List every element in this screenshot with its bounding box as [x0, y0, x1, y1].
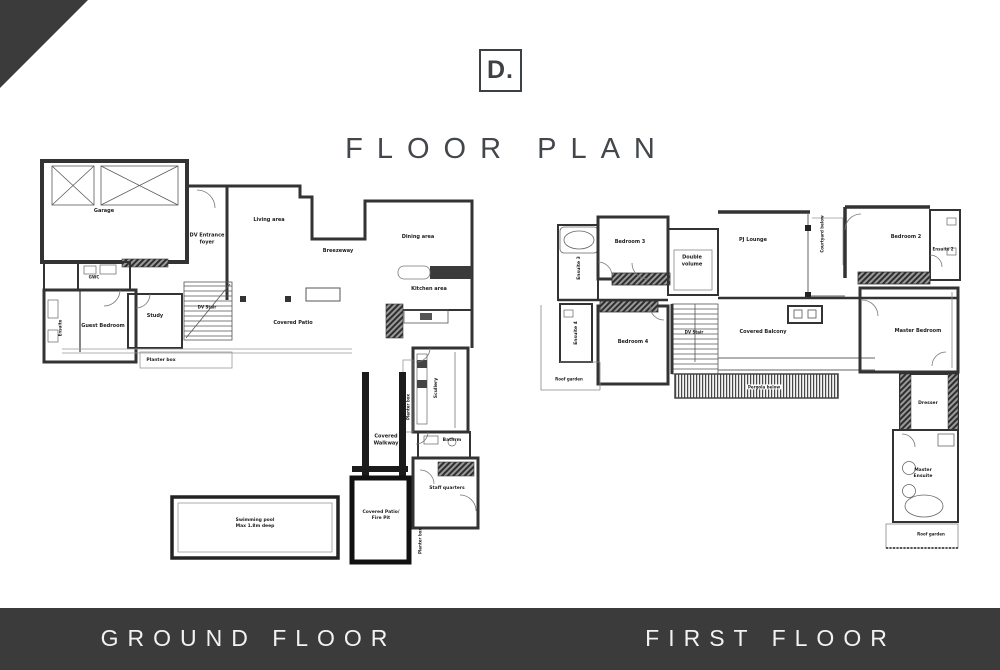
- footer-band: GROUND FLOOR FIRST FLOOR: [0, 608, 1000, 670]
- label-staff-quarters: Staff quarters: [429, 486, 464, 492]
- label-roof-garden-left: Roof garden: [555, 376, 583, 381]
- label-planter-box-2: Planter box: [405, 394, 410, 420]
- ground-main-walls: [187, 186, 472, 348]
- label-master-ensuite: Master Ensuite: [908, 468, 938, 480]
- kitchen-fixtures: [398, 266, 472, 323]
- label-dresser: Dresser: [918, 401, 938, 407]
- label-bedroom-3: Bedroom 3: [615, 239, 646, 246]
- label-covered-patio: Covered Patio: [273, 320, 312, 327]
- label-double-volume: Double volume: [677, 255, 707, 268]
- ground-stair: [184, 282, 232, 340]
- label-covered-balcony: Covered Balcony: [739, 329, 786, 336]
- label-swimming-pool: Swimming pool Max 1.8m deep: [236, 518, 275, 530]
- balcony-band-1: [612, 273, 670, 285]
- ground-floor-caption: GROUND FLOOR: [92, 625, 397, 652]
- garage-outline: [42, 161, 187, 267]
- first-stair: [672, 304, 718, 374]
- label-guest-bedroom: Guest Bedroom: [81, 323, 125, 330]
- label-dining-area: Dining area: [402, 234, 435, 241]
- label-bedroom-4: Bedroom 4: [618, 339, 649, 346]
- label-dv-stair-first: DV Stair: [685, 329, 704, 334]
- label-pergola-below: Pergola below: [746, 384, 782, 389]
- label-dv-entrance-foyer: DV Entrance foyer: [186, 233, 228, 246]
- label-ensuite-3: Ensuite 3: [577, 256, 583, 280]
- label-bathrm: Bathrm: [443, 438, 462, 444]
- label-planter-box-3: Planter box: [417, 528, 422, 554]
- first-floor-caption: FIRST FLOOR: [636, 625, 896, 652]
- floorplan-linework: [0, 0, 1000, 670]
- label-pj-lounge: PJ Lounge: [739, 237, 767, 244]
- label-breezeway: Breezeway: [323, 248, 353, 255]
- label-ensuite-4: Ensuite 4: [574, 321, 580, 345]
- label-living-area: Living area: [253, 217, 284, 224]
- label-dv-stair-ground: DV Stair: [198, 304, 217, 309]
- balcony-area: [718, 306, 875, 370]
- label-roof-garden-bottom: Roof garden: [917, 531, 945, 536]
- label-master-bedroom: Master Bedroom: [895, 328, 942, 335]
- label-gwc: GWC: [89, 274, 100, 279]
- staff-block: [413, 432, 478, 528]
- pj-lounge-walls: [718, 212, 845, 298]
- label-covered-walkway: Covered Walkway: [369, 434, 403, 447]
- label-bedroom-2: Bedroom 2: [891, 234, 922, 241]
- mid-division: [558, 298, 958, 300]
- label-courtyard-below: Courtyard below: [819, 215, 824, 252]
- label-study: Study: [147, 313, 163, 320]
- floor-plan-page: D. FLOOR PLAN: [0, 0, 1000, 670]
- garage-door-cross: [52, 166, 178, 205]
- label-ensuite-2: Ensuite 2: [933, 246, 954, 251]
- label-planter-box: Planter box: [146, 358, 175, 364]
- label-scullery: Scullery: [434, 378, 440, 398]
- label-kitchen-area: Kitchen area: [411, 286, 447, 293]
- first-floor-plan: [541, 207, 960, 548]
- label-ensuite-ground: Ensuite: [57, 320, 62, 337]
- pool-line2: Max 1.8m deep: [236, 524, 275, 529]
- label-fire-pit: Covered Patio/ Fire Pit: [358, 510, 404, 522]
- bathtub: [564, 231, 594, 249]
- walkway-walls: [352, 372, 408, 480]
- pool-line1: Swimming pool: [236, 518, 275, 523]
- label-garage: Garage: [94, 208, 114, 215]
